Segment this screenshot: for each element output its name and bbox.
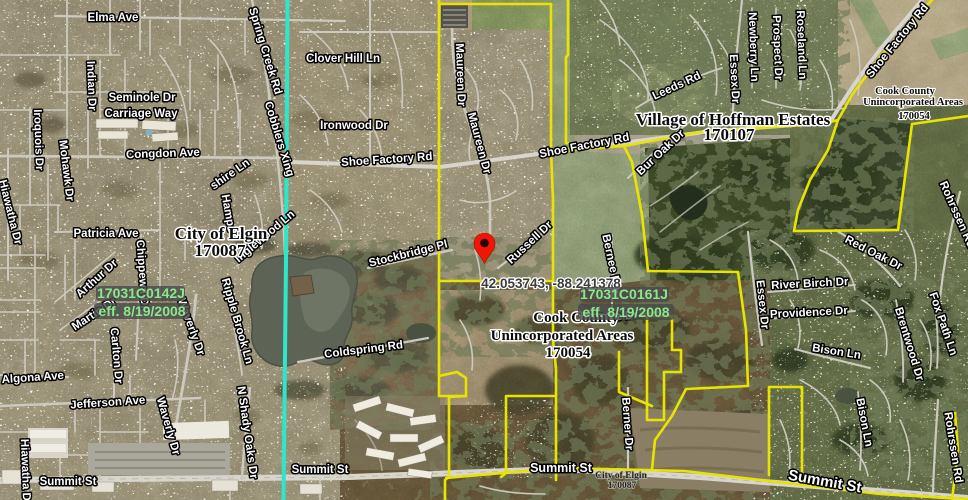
svg-text:Summit St: Summit St [530, 461, 593, 475]
svg-text:Clover Hill Ln: Clover Hill Ln [306, 53, 380, 65]
svg-text:Iroquois Dr: Iroquois Dr [31, 109, 45, 171]
svg-text:Prospect Dr: Prospect Dr [770, 15, 784, 81]
svg-text:Unincorporated Areas: Unincorporated Areas [863, 97, 963, 108]
svg-text:Maureen Dr: Maureen Dr [453, 43, 467, 107]
svg-text:eff. 8/19/2008: eff. 8/19/2008 [98, 303, 185, 319]
svg-text:Carriage Way: Carriage Way [104, 108, 178, 120]
svg-text:Seminole Dr: Seminole Dr [108, 92, 176, 104]
svg-text:170054: 170054 [898, 111, 930, 122]
svg-text:17031C0161J: 17031C0161J [580, 286, 668, 302]
svg-text:Elma Ave: Elma Ave [88, 12, 139, 24]
svg-text:Patricia Ave: Patricia Ave [74, 228, 139, 240]
svg-text:Hiawatha D: Hiawatha D [18, 439, 32, 500]
svg-text:170087: 170087 [195, 241, 247, 260]
svg-text:Roseland Ln: Roseland Ln [794, 10, 808, 79]
svg-text:Indian Dr: Indian Dr [84, 61, 98, 112]
svg-text:170107: 170107 [704, 125, 756, 144]
svg-text:Newberry Ln: Newberry Ln [746, 12, 760, 82]
svg-text:17031C0142J: 17031C0142J [97, 285, 185, 301]
svg-text:170087: 170087 [608, 481, 637, 491]
svg-text:Summit St: Summit St [292, 464, 349, 476]
svg-text:eff. 8/19/2008: eff. 8/19/2008 [582, 304, 669, 320]
svg-text:City of Elgin: City of Elgin [595, 471, 647, 481]
svg-text:Cook County: Cook County [875, 86, 936, 97]
svg-text:170054: 170054 [546, 345, 592, 361]
svg-text:Summit St: Summit St [40, 476, 97, 488]
svg-text:Ironwood Dr: Ironwood Dr [320, 120, 388, 132]
svg-text:Unincorporated Areas: Unincorporated Areas [491, 328, 634, 344]
